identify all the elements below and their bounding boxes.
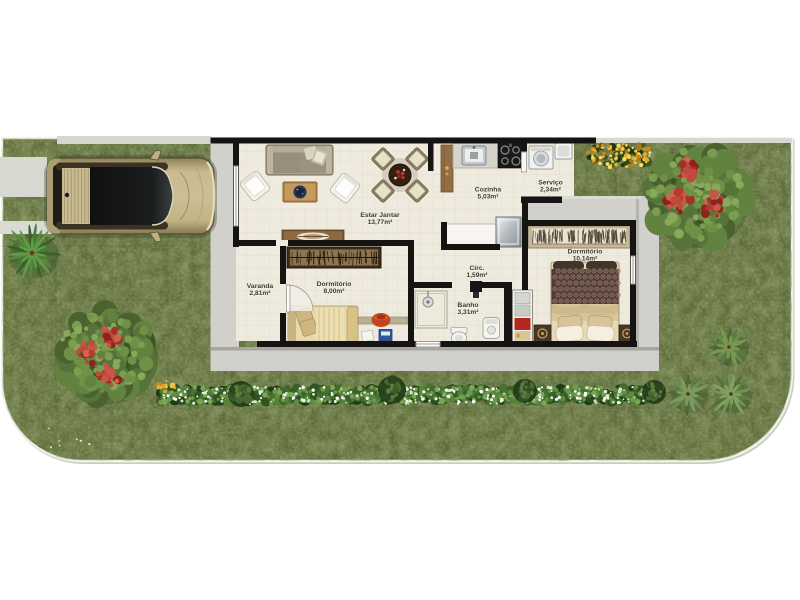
svg-text:3,31m²: 3,31m² [458,309,480,316]
svg-text:8,00m²: 8,00m² [324,288,346,295]
svg-text:Dormitório: Dormitório [317,281,352,288]
svg-text:13,77m²: 13,77m² [368,219,393,226]
svg-text:5,03m²: 5,03m² [478,194,500,201]
svg-text:2,81m²: 2,81m² [250,290,272,297]
svg-text:Banho: Banho [457,302,478,309]
svg-text:Varanda: Varanda [247,283,274,290]
svg-text:Circ.: Circ. [469,265,484,272]
svg-text:Cozinha: Cozinha [475,187,502,194]
svg-text:1,59m²: 1,59m² [467,272,489,279]
svg-text:10,14m²: 10,14m² [573,256,598,263]
svg-text:Serviço: Serviço [538,180,563,187]
svg-text:Dormitório: Dormitório [568,249,603,256]
svg-text:Estar Jantar: Estar Jantar [360,212,400,219]
svg-text:2,34m²: 2,34m² [540,187,562,194]
